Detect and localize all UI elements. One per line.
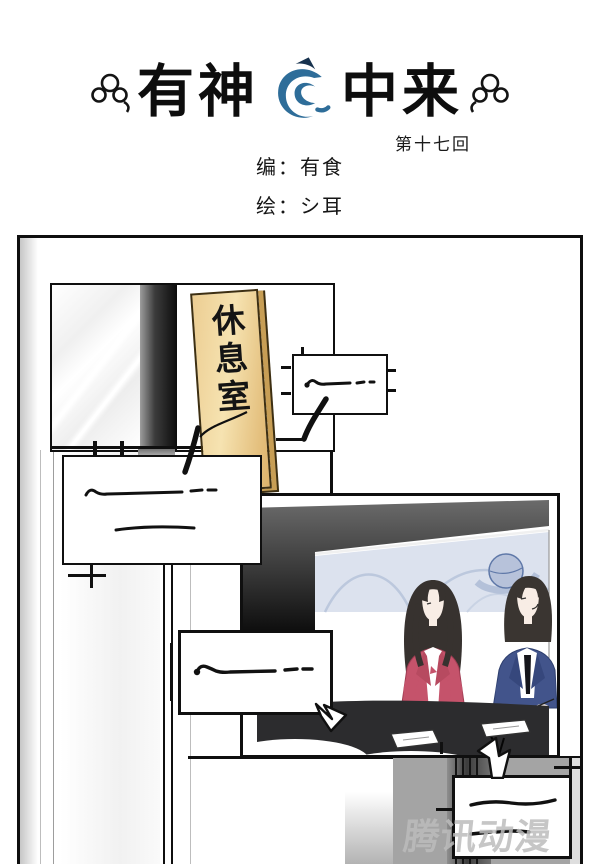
chapter-label: 第十七回	[395, 130, 471, 155]
sketch-mark	[440, 742, 443, 754]
bubble-1-tail	[296, 394, 336, 446]
series-title: 有神 中来	[0, 46, 600, 138]
door-gap-dark-strip	[140, 285, 177, 450]
frame-line	[40, 450, 41, 864]
tv-panel	[240, 493, 560, 758]
credit-editor: 编：有食	[256, 151, 344, 180]
anchor-left	[401, 580, 465, 715]
door-glass	[52, 285, 140, 450]
tv-scene	[243, 496, 557, 755]
comic-page: 有神 中来 第十七回 编：有食 绘：シ耳	[0, 0, 600, 864]
panel-border-left	[17, 235, 20, 864]
bubble-4-tail	[472, 733, 516, 779]
sketch-mark	[120, 441, 124, 455]
pointer-flick	[175, 400, 315, 485]
tv-stand-shadow	[345, 792, 393, 864]
title-right-text: 中来	[341, 64, 463, 121]
sketch-mark	[68, 574, 106, 577]
sketch-mark	[554, 766, 582, 769]
sketch-mark	[170, 643, 173, 701]
sketch-mark	[281, 392, 291, 395]
credit-artist: 绘：シ耳	[256, 190, 344, 219]
cloud-swirl-left-icon	[89, 70, 131, 114]
series-logo-icon	[265, 53, 335, 132]
watermark: 腾讯动漫	[401, 808, 586, 860]
sketch-mark	[281, 366, 291, 369]
sketch-mark	[93, 441, 97, 455]
panel-border-top	[17, 235, 583, 238]
frame-line	[53, 450, 54, 864]
cloud-swirl-right-icon	[469, 70, 511, 114]
wall-shading	[20, 238, 38, 864]
panel-border-right	[580, 235, 583, 864]
title-left-text: 有神	[137, 64, 259, 121]
bubble-3-tail	[306, 700, 356, 746]
